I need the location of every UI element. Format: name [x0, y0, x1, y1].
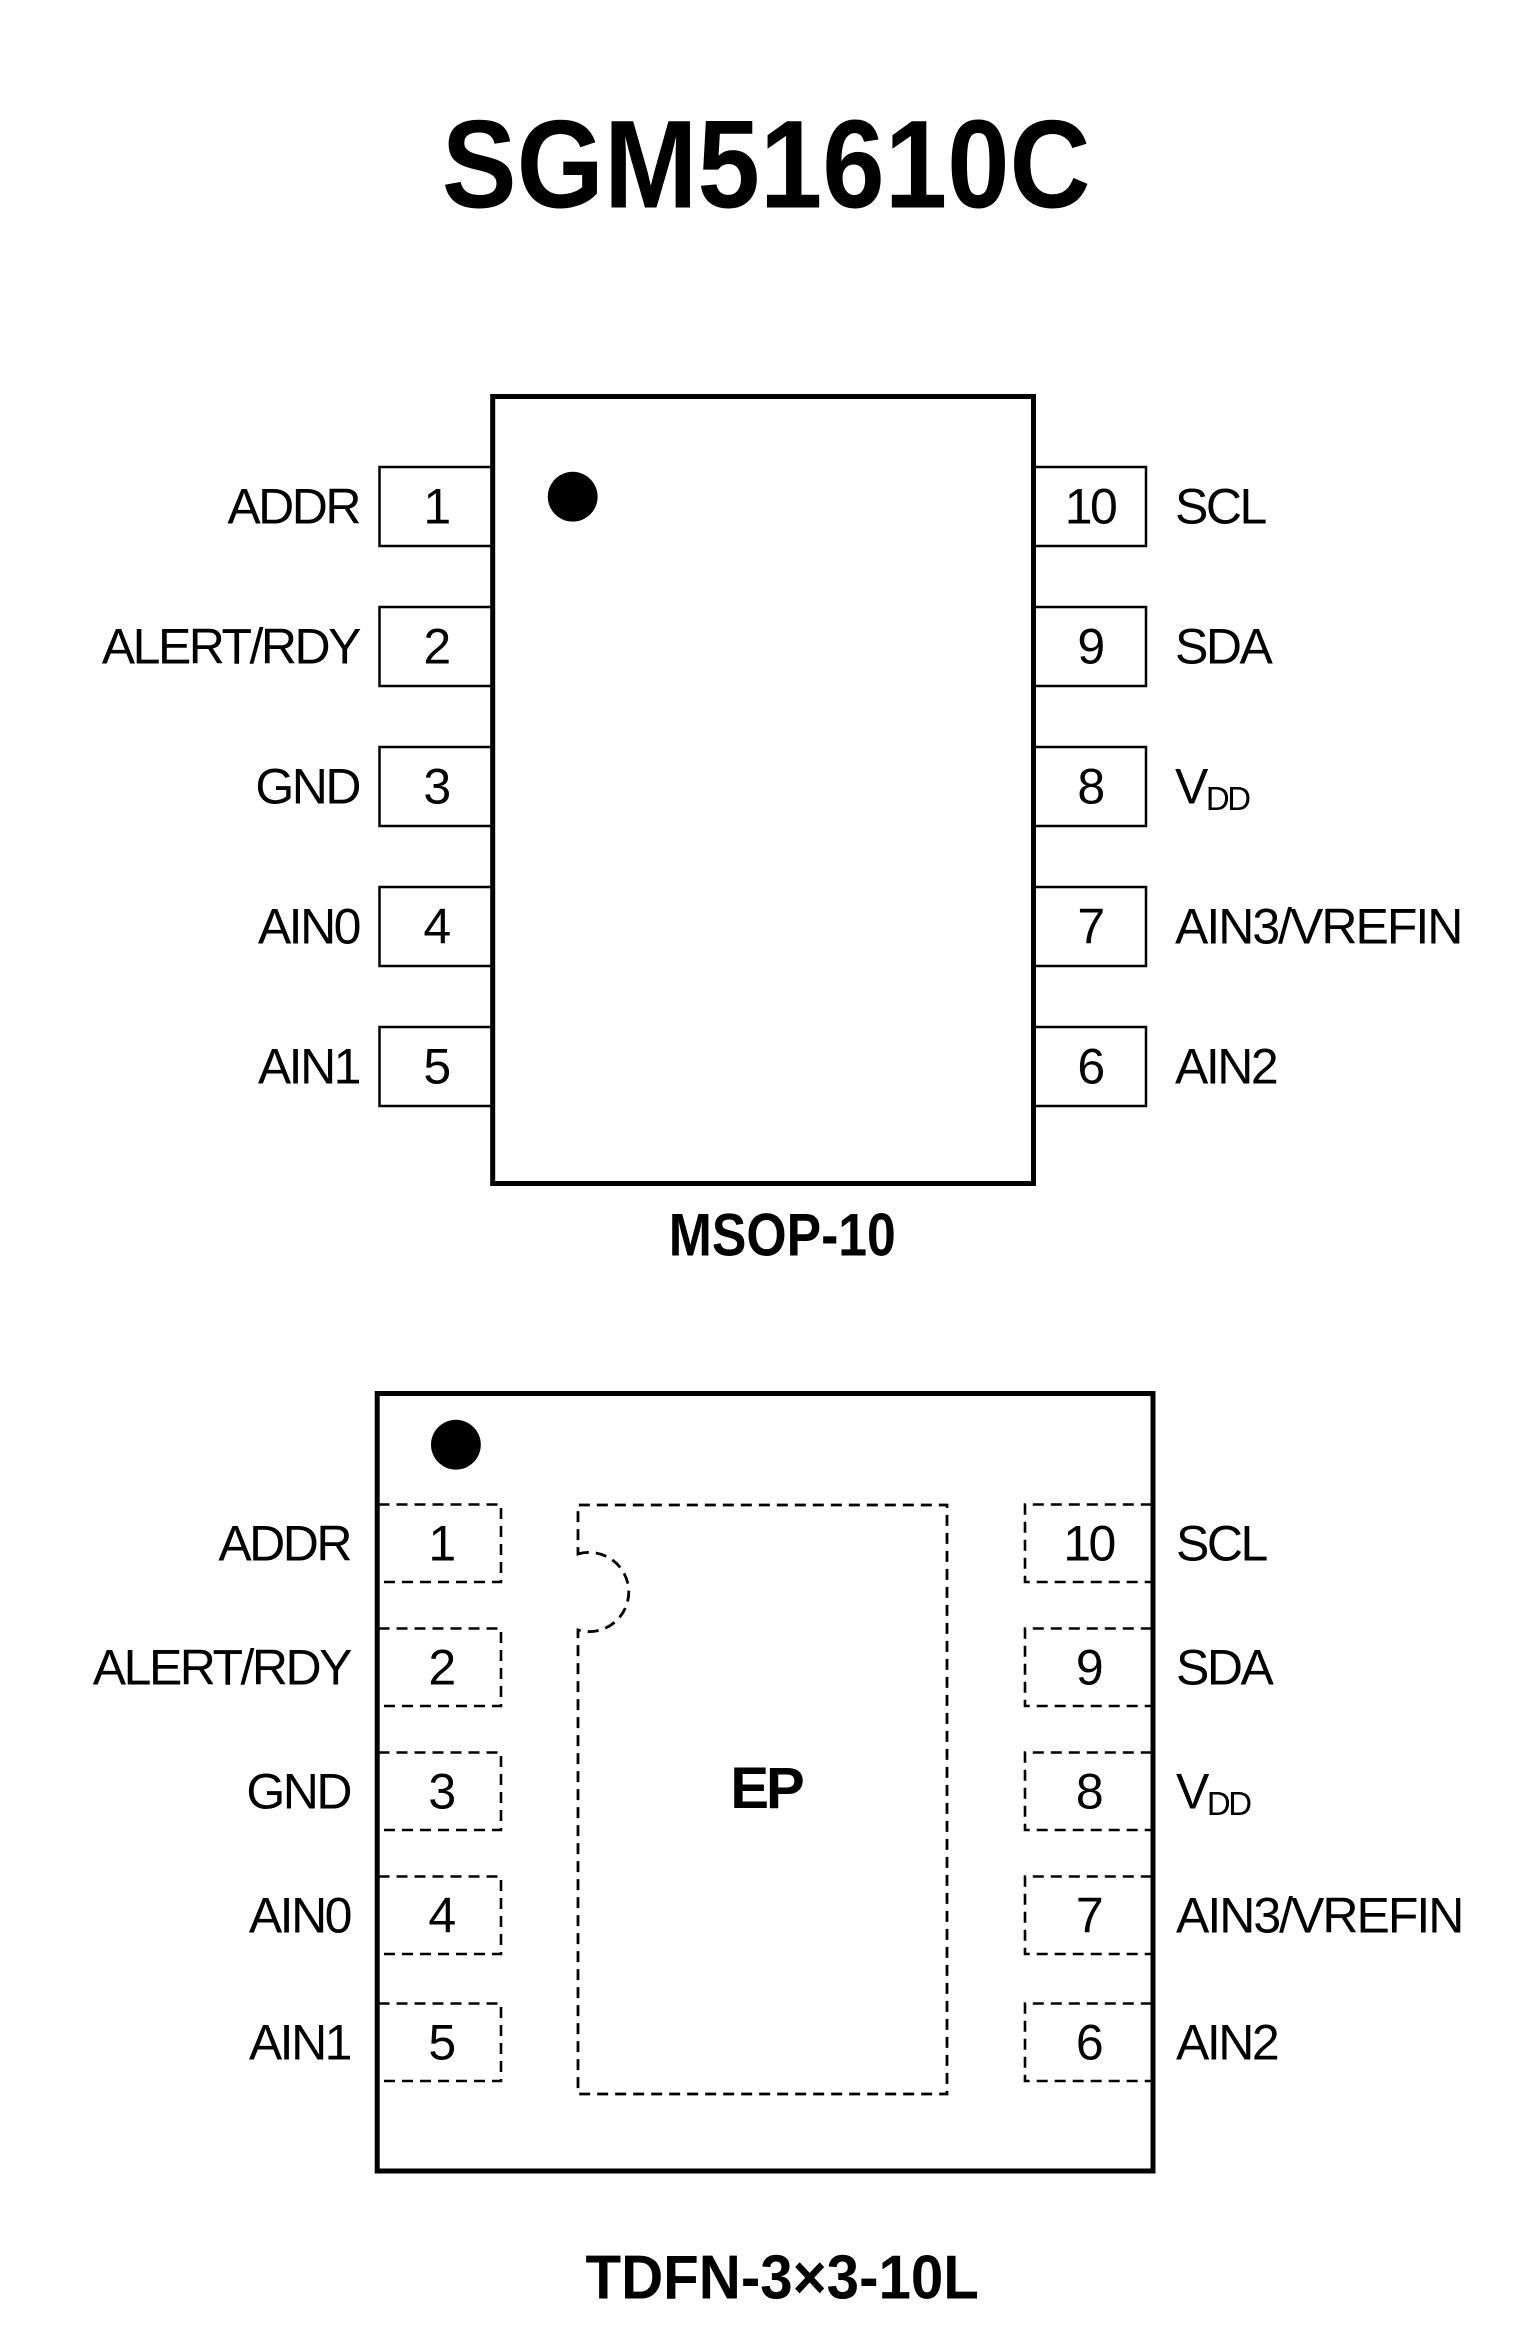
svg-text:ALERT/RDY: ALERT/RDY: [93, 1640, 352, 1696]
svg-text:SDA: SDA: [1176, 1640, 1274, 1696]
svg-text:4: 4: [428, 1888, 455, 1944]
svg-text:2: 2: [428, 1640, 454, 1696]
svg-text:AIN0: AIN0: [249, 1888, 351, 1944]
svg-text:1: 1: [428, 1516, 454, 1572]
svg-text:AIN1: AIN1: [258, 1039, 360, 1095]
svg-text:6: 6: [1076, 2015, 1102, 2071]
svg-text:GND: GND: [246, 1764, 350, 1820]
svg-text:AIN2: AIN2: [1176, 2015, 1278, 2071]
svg-text:SDA: SDA: [1175, 619, 1273, 675]
svg-text:VDD: VDD: [1175, 759, 1250, 818]
svg-text:3: 3: [423, 759, 449, 815]
svg-text:GND: GND: [255, 759, 359, 815]
svg-text:SGM51610C: SGM51610C: [442, 95, 1091, 235]
svg-text:SCL: SCL: [1176, 1516, 1267, 1572]
svg-text:ADDR: ADDR: [227, 479, 359, 535]
svg-text:AIN2: AIN2: [1175, 1039, 1277, 1095]
svg-text:10: 10: [1063, 1516, 1114, 1572]
svg-text:AIN3/VREFIN: AIN3/VREFIN: [1176, 1888, 1462, 1944]
svg-text:ALERT/RDY: ALERT/RDY: [102, 619, 361, 675]
svg-text:6: 6: [1077, 1039, 1103, 1095]
svg-text:4: 4: [423, 899, 450, 955]
svg-text:7: 7: [1077, 899, 1103, 955]
svg-text:AIN3/VREFIN: AIN3/VREFIN: [1175, 899, 1461, 955]
svg-text:5: 5: [423, 1039, 449, 1095]
svg-text:1: 1: [423, 479, 449, 535]
svg-text:3: 3: [428, 1764, 454, 1820]
svg-text:TDFN-3×3-10L: TDFN-3×3-10L: [586, 2243, 979, 2312]
svg-text:10: 10: [1065, 479, 1116, 535]
svg-text:VDD: VDD: [1176, 1764, 1251, 1823]
svg-text:ADDR: ADDR: [218, 1516, 350, 1572]
svg-text:9: 9: [1077, 619, 1103, 675]
svg-text:MSOP-10: MSOP-10: [669, 1201, 896, 1268]
svg-text:SCL: SCL: [1175, 479, 1266, 535]
svg-text:7: 7: [1076, 1888, 1102, 1944]
svg-text:5: 5: [428, 2015, 454, 2071]
svg-text:EP: EP: [730, 1756, 803, 1821]
svg-text:9: 9: [1076, 1640, 1102, 1696]
svg-text:AIN0: AIN0: [258, 899, 360, 955]
svg-text:AIN1: AIN1: [249, 2015, 351, 2071]
svg-text:8: 8: [1077, 759, 1103, 815]
svg-text:8: 8: [1076, 1764, 1102, 1820]
svg-text:2: 2: [423, 619, 449, 675]
